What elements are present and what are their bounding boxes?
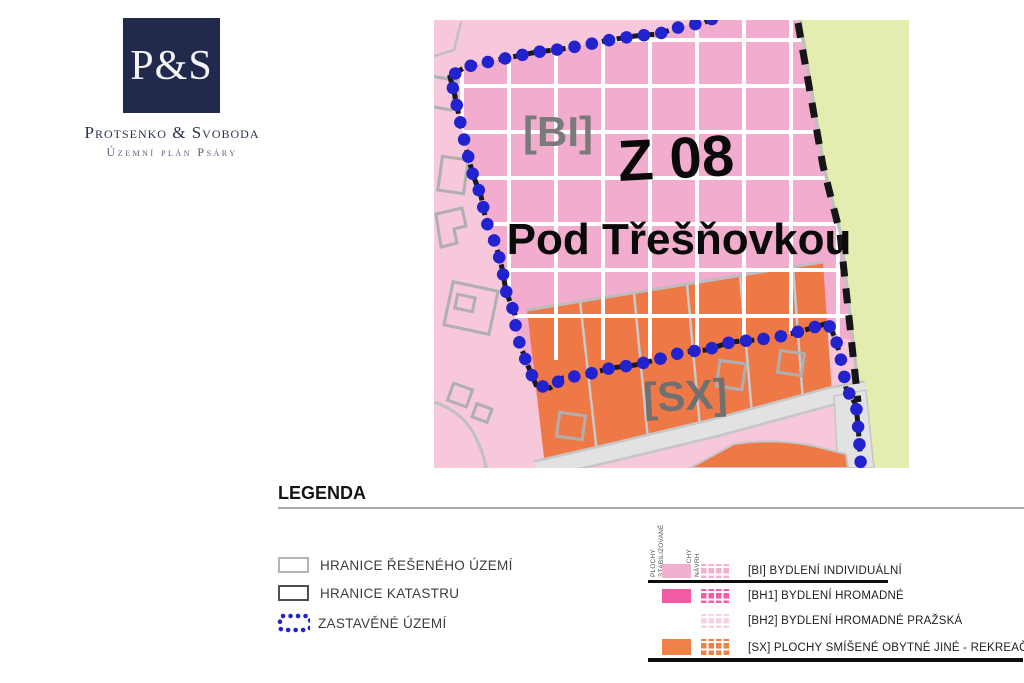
zoning-map: [BI] Z 08 Pod Třešňovkou [SX] [434, 20, 909, 468]
legend-item-label: HRANICE ŘEŠENÉHO ÚZEMÍ [320, 558, 513, 573]
solved-area-boundary-symbol [278, 557, 309, 573]
stabilized-swatch [662, 564, 691, 578]
stabilized-swatch [662, 639, 691, 655]
zone-code-label: Z 08 [616, 123, 735, 194]
stabilized-swatch [662, 589, 691, 603]
legend-item-built-up: ZASTAVĚNÉ ÚZEMÍ [276, 611, 447, 635]
proposed-swatch [700, 614, 729, 628]
built-up-area-symbol [276, 612, 310, 634]
grid-pattern [700, 589, 729, 603]
proposed-swatch [700, 589, 729, 603]
map-region-sx-label: [SX] [642, 370, 728, 421]
plan-subtitle: Územní plán Psáry [40, 145, 304, 160]
legend-title: LEGENDA [278, 483, 366, 504]
legend-item-cadastre: HRANICE KATASTRU [278, 584, 459, 602]
map-region-bi-label: [BI] [523, 108, 593, 155]
legend-item-label: HRANICE KATASTRU [320, 586, 459, 601]
area-item-label: [BH2] BYDLENÍ HROMADNÉ PRAŽSKÁ [748, 615, 962, 627]
grid-pattern [700, 639, 729, 655]
zone-name-label: Pod Třešňovkou [507, 215, 852, 264]
proposed-swatch [700, 639, 729, 655]
cadastre-boundary-symbol [278, 585, 309, 601]
area-item-label: [BI] BYDLENÍ INDIVIDUÁLNÍ [748, 565, 902, 577]
page: P&S Protsenko & Svoboda Územní plán Psár… [0, 0, 1024, 683]
proposed-swatch [700, 564, 729, 578]
area-item-label: [BH1] BYDLENÍ HROMADNÉ [748, 590, 904, 602]
legend-bottom-line [648, 658, 1023, 662]
logo-box: P&S [123, 18, 220, 113]
area-item-label: [SX] PLOCHY SMÍŠENÉ OBYTNÉ JINÉ - REKREA… [748, 642, 1024, 654]
grid-pattern [700, 614, 729, 628]
legend-divider [278, 507, 1024, 509]
legend-item-solved-area: HRANICE ŘEŠENÉHO ÚZEMÍ [278, 556, 513, 574]
logo-monogram: P&S [130, 42, 212, 90]
company-name: Protsenko & Svoboda [40, 123, 304, 143]
legend-item-label: ZASTAVĚNÉ ÚZEMÍ [318, 616, 447, 631]
grid-pattern [700, 564, 729, 578]
legend-separator-line [648, 580, 888, 583]
